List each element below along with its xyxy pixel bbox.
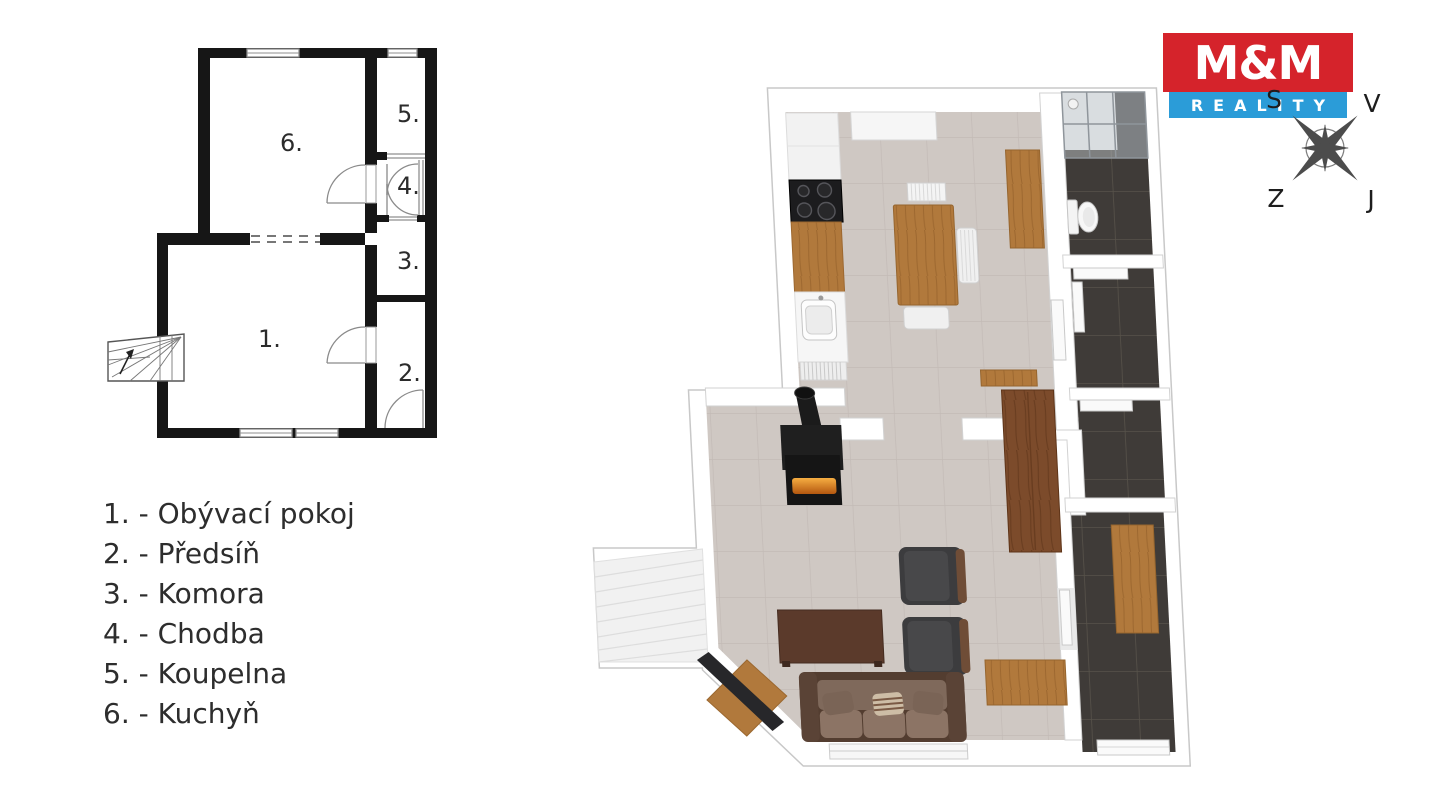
legend-item-4: 4. - Chodba [103,614,355,654]
sofa [799,672,967,742]
radiator [907,183,946,201]
staircase-2d [108,334,184,381]
compass-label-south: J [1365,185,1374,214]
legend-item-2: 2. - Předsíň [103,534,355,574]
compass-rose: S V Z J [1250,80,1395,220]
kitchen-sink [795,292,848,362]
floor-plan-2d: 1. 2. 3. 4. 5. 6. [95,35,450,450]
coffee-table [777,610,884,667]
small-bench [980,370,1037,386]
room-legend: 1. - Obývací pokoj 2. - Předsíň 3. - Kom… [103,494,355,734]
compass-label-west: Z [1267,184,1284,213]
legend-item-3: 3. - Komora [103,574,355,614]
compass-star [1288,111,1362,185]
cooktop [789,180,843,222]
room-label-4: 4. [397,172,420,200]
compass-label-north: S [1266,85,1282,114]
room-label-2: 2. [398,359,421,387]
room-label-6: 6. [280,129,303,157]
armchair-1 [898,547,967,605]
shower [1062,92,1148,158]
staircase-3d [593,549,708,662]
dining-chair-right [956,228,979,283]
living-bench [985,660,1067,705]
toilet [1067,200,1099,234]
striped-pillow [872,692,905,717]
legend-item-1: 1. - Obývací pokoj [103,494,355,534]
kitchen-sideboard [1005,150,1044,248]
room-label-1: 1. [258,325,281,353]
stove-fire-window [792,478,837,494]
kitchen-counter-wood [791,222,844,292]
legend-item-6: 6. - Kuchyň [103,694,355,734]
dashed-opening [250,233,320,245]
bathroom-floor [1064,150,1152,255]
hallway-sideboard [1111,525,1158,633]
armchair-2 [902,617,971,675]
room-label-3: 3. [397,247,420,275]
window-bay [851,112,937,140]
compass-label-east: V [1363,89,1380,118]
room-label-5: 5. [397,100,420,128]
dish-drainer [800,362,847,380]
pantry-floor [1077,400,1165,498]
dining-chair-bottom [903,307,949,329]
screenshot-root: 1. 2. 3. 4. 5. 6. 1. - Obývací pokoj 2. … [0,0,1440,810]
legend-item-5: 5. - Koupelna [103,654,355,694]
